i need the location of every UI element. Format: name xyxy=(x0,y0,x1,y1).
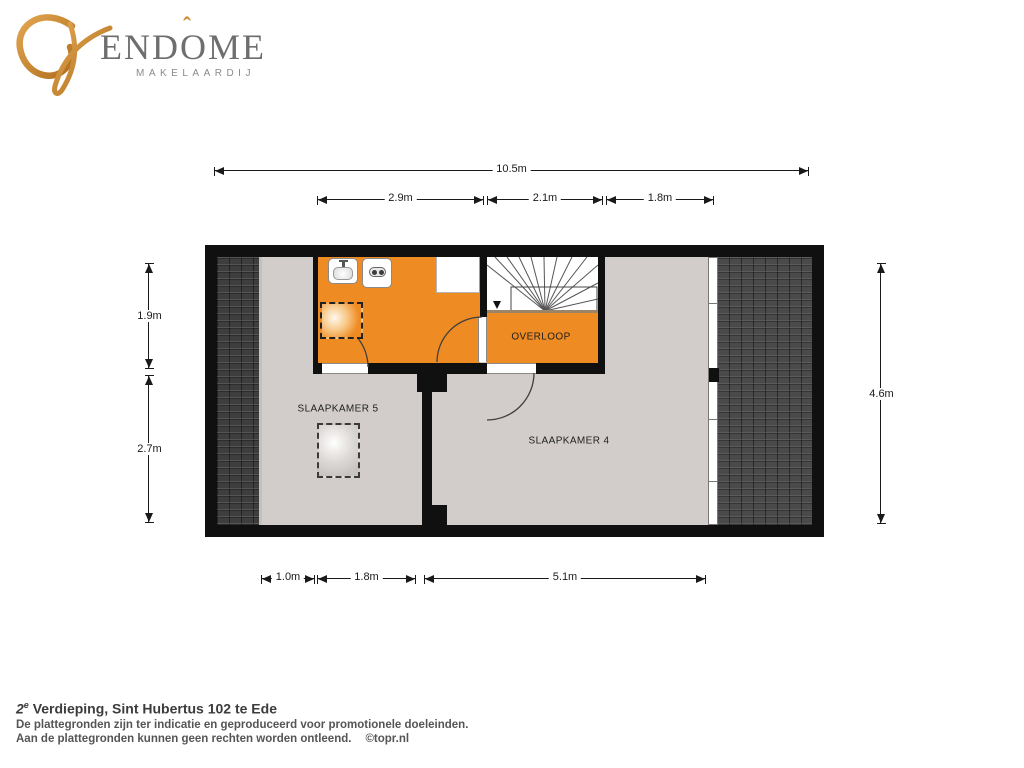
dim-bath-width: 2.9m xyxy=(318,199,483,200)
page-title: 2e Verdieping, Sint Hubertus 102 te Ede xyxy=(16,700,468,717)
dim-bottom-left: 1.0m xyxy=(262,578,314,579)
floorplan-page: ENDOˆME MAKELAARDIJ xyxy=(0,0,1024,768)
disclaimer-line1: De plattegronden zijn ter indicatie en g… xyxy=(16,719,468,731)
sink-icon xyxy=(328,258,358,284)
dim-stairs-width: 2.1m xyxy=(488,199,602,200)
logo-subtitle: MAKELAARDIJ xyxy=(136,68,255,79)
dim-bottom-right: 5.1m xyxy=(425,578,705,579)
skylight-bathroom xyxy=(320,302,363,339)
skylight-bedroom5 xyxy=(317,423,360,478)
room-label-bedroom4: SLAAPKAMER 4 xyxy=(529,436,610,447)
vendome-logo: ENDOˆME MAKELAARDIJ xyxy=(12,6,272,96)
dim-right-height: 4.6m xyxy=(880,264,881,523)
dim-bottom-mid: 1.8m xyxy=(318,578,415,579)
dim-right-width: 1.8m xyxy=(607,199,713,200)
footer: 2e Verdieping, Sint Hubertus 102 te Ede … xyxy=(16,700,468,745)
room-label-bedroom5: SLAAPKAMER 5 xyxy=(298,404,379,415)
room-label-landing: OVERLOOP xyxy=(511,332,570,343)
logo-accent: ˆ xyxy=(183,14,193,41)
dim-total-width: 10.5m xyxy=(215,170,808,171)
dim-left-bottom: 2.7m xyxy=(148,376,149,522)
credit-topr: ©topr.nl xyxy=(365,733,409,745)
door-swing-arcs xyxy=(205,245,824,537)
toilet-icon xyxy=(362,258,392,288)
disclaimer-line2: Aan de plattegronden kunnen geen rechten… xyxy=(16,733,468,745)
logo-wordmark: ENDOˆME xyxy=(100,26,266,68)
dim-left-top: 1.9m xyxy=(148,264,149,368)
